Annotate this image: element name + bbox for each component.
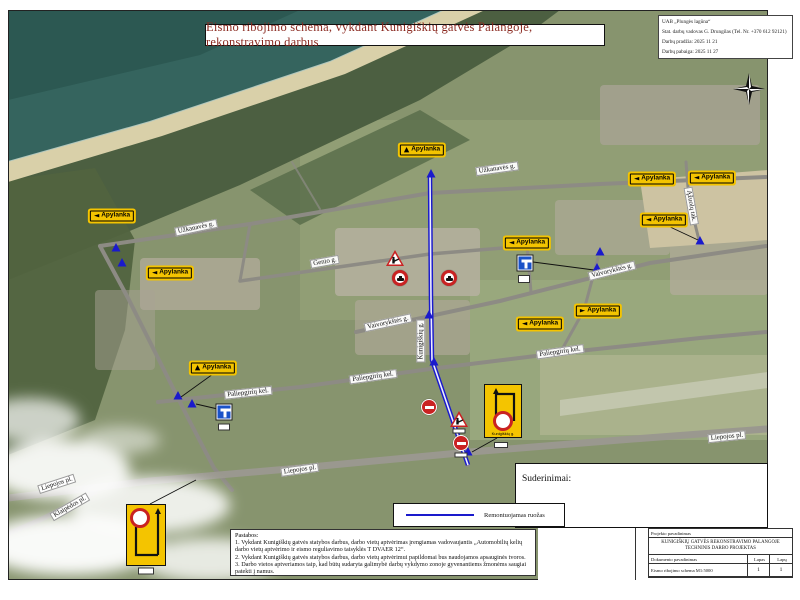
detour-sign: ◄Apylanka [148,268,192,279]
detour-sign-label: Apylanka [653,217,682,224]
sign-plate [218,424,230,431]
detour-sign-label: Apylanka [516,240,545,247]
no-motor-vehicles-sign [441,270,457,286]
sheets-total: 1 [770,564,792,577]
arrow-left-icon: ◄ [694,175,699,182]
no-entry-bar-icon [425,406,434,409]
arrow-left-icon: ◄ [634,176,639,183]
drawing-title-text: Eismo ribojimo schema, vykdant Kunigiški… [206,20,604,50]
divider [635,528,636,580]
car-icon [446,278,453,281]
detour-sign: ◄Apylanka [630,174,674,185]
detour-sign: ◄Apylanka [505,238,549,249]
detour-sign-label: Apylanka [587,308,616,315]
dead-end-sign [518,256,533,271]
detour-sign-label: Apylanka [641,176,670,183]
arrow-right-icon: ► [580,308,585,315]
no-entry-sign [453,435,469,451]
notes-heading: Pastabos: [235,532,531,539]
arrow-up-icon: ▲ [195,365,200,372]
arrow-left-icon: ◄ [94,213,99,220]
page-margin [769,0,800,600]
title-block: Projekto pavadinimas KUNIGIŠKIŲ GATVĖS R… [648,528,793,578]
detour-sign-label: Apylanka [411,147,440,154]
route-line-icon [406,514,474,516]
project-name: KUNIGIŠKIŲ GATVĖS REKONSTRAVIMO PALANGOJ… [649,538,792,555]
sign-plate [494,442,508,448]
arrow-up-icon: ▲ [404,147,409,154]
detour-sign: ▲Apylanka [191,363,235,374]
detour-sign: ◄Apylanka [518,319,562,330]
arrow-left-icon: ◄ [152,270,157,277]
detour-sign-label: Apylanka [101,213,130,220]
detour-sign-label: Apylanka [202,365,231,372]
roadworks-sign [385,249,405,267]
car-icon [397,278,404,281]
project-name-label: Projekto pavadinimas [649,529,792,538]
legend: Remontuojamas ruožas [393,503,565,527]
works-start-date: Darbų pradžia: 2025 11 21 [662,38,789,48]
arrow-left-icon: ◄ [509,240,514,247]
dead-end-icon [525,260,528,269]
detour-sign-label: Apylanka [701,175,730,182]
note-item: 3. Darbo vietos aptveriamos taip, kad bū… [235,561,531,576]
board-street-label: Kunigiškių g. [485,431,521,436]
detour-board [126,504,166,566]
sign-plate [453,429,466,434]
document-name: Eismo ribojimo schema M1:5000 [649,564,748,577]
sheet-number: 1 [748,564,770,577]
no-entry-bar-icon [457,442,466,445]
detour-board: Kunigiškių g. [484,384,522,438]
detour-sign: ▲Apylanka [400,145,444,156]
detour-sign: ◄Apylanka [642,215,686,226]
street-label: Kunigiškių g. [416,319,425,362]
detour-sign-label: Apylanka [159,270,188,277]
contractor-info-box: UAB „Plungės lagūna“ Stat. darbų vadovas… [658,15,793,59]
note-item: 2. Vykdant Kunigiškių gatvės statybos da… [235,554,531,561]
no-motor-vehicles-sign [392,270,408,286]
contractor-manager: Stat. darbų vadovas G. Drungilas (Tel. N… [662,28,789,38]
drawing-title: Eismo ribojimo schema, vykdant Kunigiški… [205,24,605,46]
notes-box: Pastabos: 1. Vykdant Kunigiškių gatvės s… [230,529,536,576]
note-item: 1. Vykdant Kunigiškių gatvės statybos da… [235,539,531,554]
works-end-date: Darbų pabaiga: 2025 11 27 [662,48,789,58]
arrow-left-icon: ◄ [522,321,527,328]
legend-label: Remontuojamas ruožas [484,512,545,519]
sheet-label: Lapas [748,555,770,564]
document-name-label: Dokumento pavadinimas [649,555,748,564]
arrow-left-icon: ◄ [646,217,651,224]
compass-rose-icon [731,71,767,107]
sheets-label: Lapų [770,555,792,564]
dead-end-icon [224,409,227,418]
contractor-company: UAB „Plungės lagūna“ [662,18,789,28]
dead-end-sign [217,405,232,420]
sign-plate [455,453,468,458]
detour-sign: ►Apylanka [576,306,620,317]
sign-plate [138,568,154,575]
detour-sign-label: Apylanka [529,321,558,328]
detour-sign: ◄Apylanka [90,211,134,222]
sign-plate [518,275,530,283]
detour-sign: ◄Apylanka [690,173,734,184]
approvals-label: Suderinimai: [522,474,571,484]
roadworks-sign [449,410,469,428]
no-entry-sign [421,399,437,415]
